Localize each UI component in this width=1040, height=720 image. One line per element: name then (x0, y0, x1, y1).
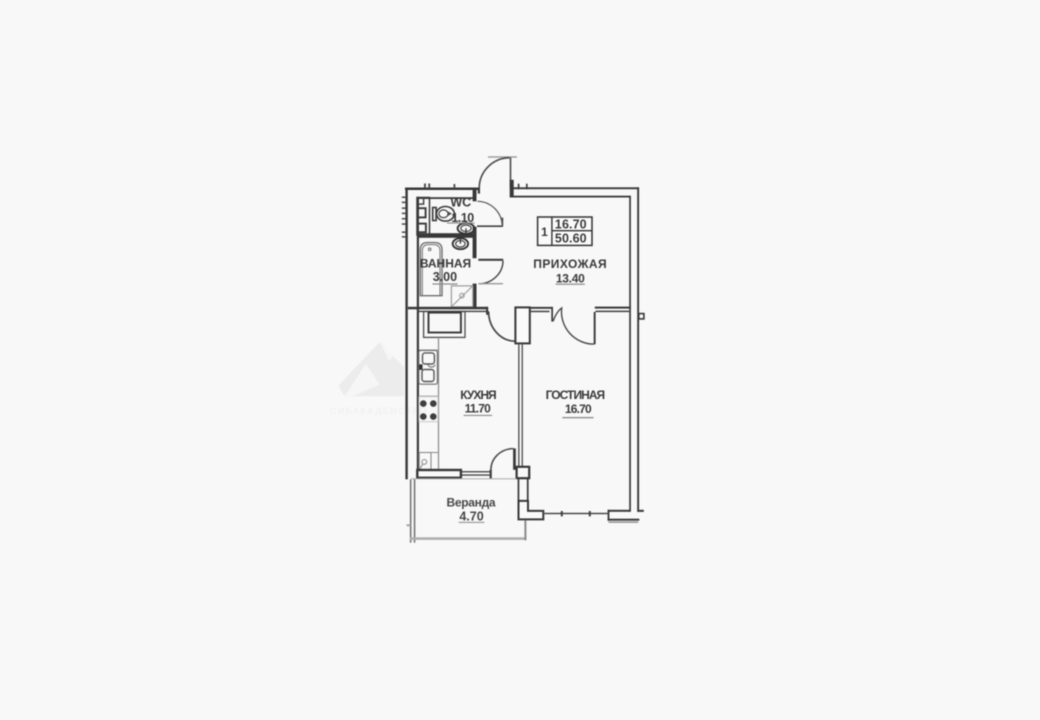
svg-text:11.70: 11.70 (465, 401, 491, 415)
svg-text:4.70: 4.70 (459, 509, 483, 523)
svg-text:WC: WC (450, 196, 471, 210)
svg-text:Веранда: Веранда (447, 495, 496, 509)
svg-text:1: 1 (541, 225, 548, 239)
svg-text:50.60: 50.60 (555, 232, 587, 246)
svg-text:ПРИХОЖАЯ: ПРИХОЖАЯ (533, 257, 607, 271)
svg-text:16.70: 16.70 (565, 402, 592, 416)
svg-text:16.70: 16.70 (555, 218, 587, 232)
svg-text:3.00: 3.00 (433, 270, 457, 284)
svg-text:КУХНЯ: КУХНЯ (460, 388, 496, 402)
svg-text:ВАННАЯ: ВАННАЯ (420, 256, 471, 270)
svg-text:13.40: 13.40 (556, 272, 585, 286)
svg-text:СИБАКАДЕМСТРО: СИБАКАДЕМСТРО (330, 406, 428, 416)
svg-text:ГОСТИНАЯ: ГОСТИНАЯ (546, 388, 605, 402)
